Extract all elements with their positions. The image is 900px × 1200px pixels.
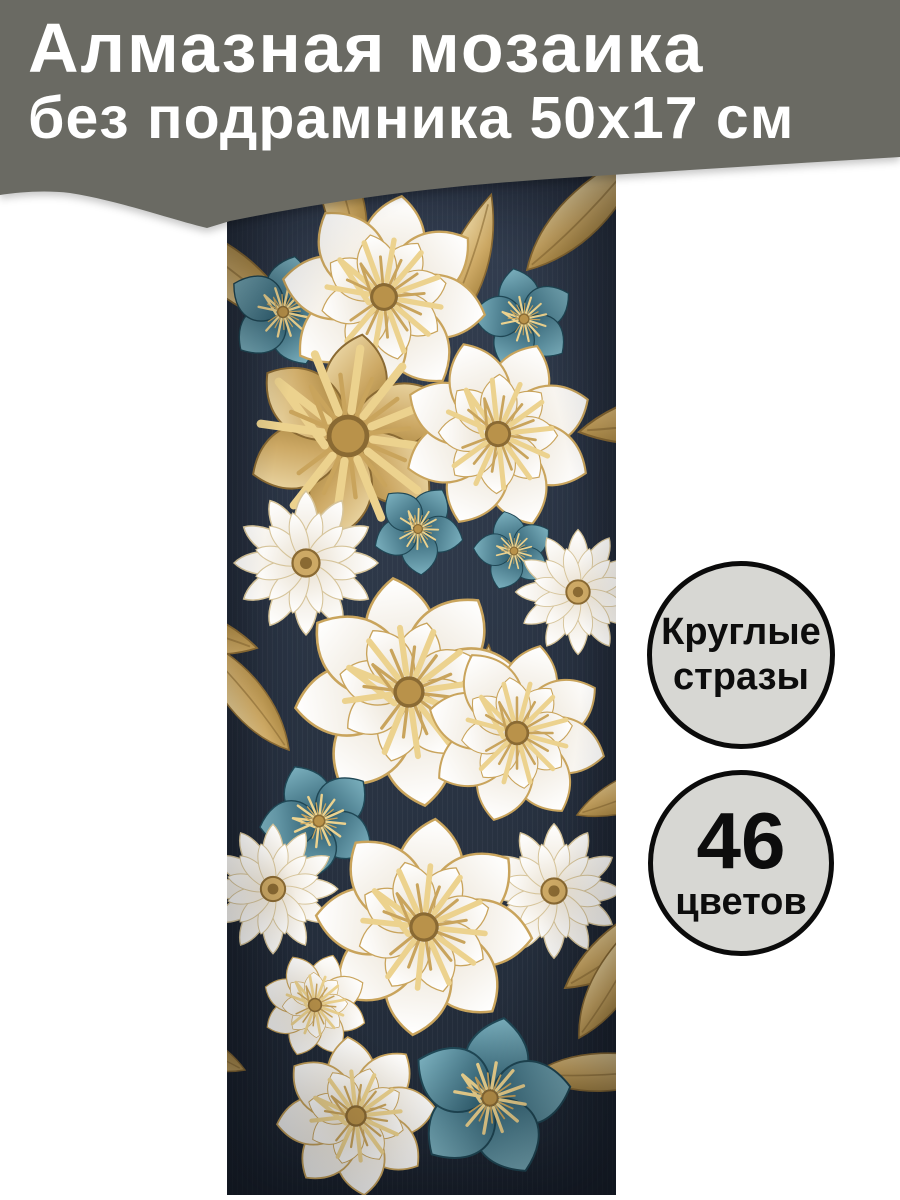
colors-count-value: 46	[697, 803, 786, 879]
product-artwork	[227, 170, 616, 1195]
badge-round-drills: Круглые стразы	[647, 561, 835, 749]
badge-colors-count: 46 цветов	[648, 770, 834, 956]
badge-round-drills-line2: стразы	[673, 655, 809, 700]
banner-title-line2: без подрамника 50х17 см	[28, 89, 794, 148]
promo-banner: Алмазная мозаика без подрамника 50х17 см	[0, 0, 900, 245]
badge-round-drills-line1: Круглые	[661, 610, 821, 655]
flower-illustration	[227, 170, 616, 1195]
vignette-overlay	[227, 170, 616, 1195]
banner-title-line1: Алмазная мозаика	[28, 13, 704, 83]
colors-count-label: цветов	[675, 882, 807, 924]
product-card: Алмазная мозаика без подрамника 50х17 см…	[0, 0, 900, 1200]
